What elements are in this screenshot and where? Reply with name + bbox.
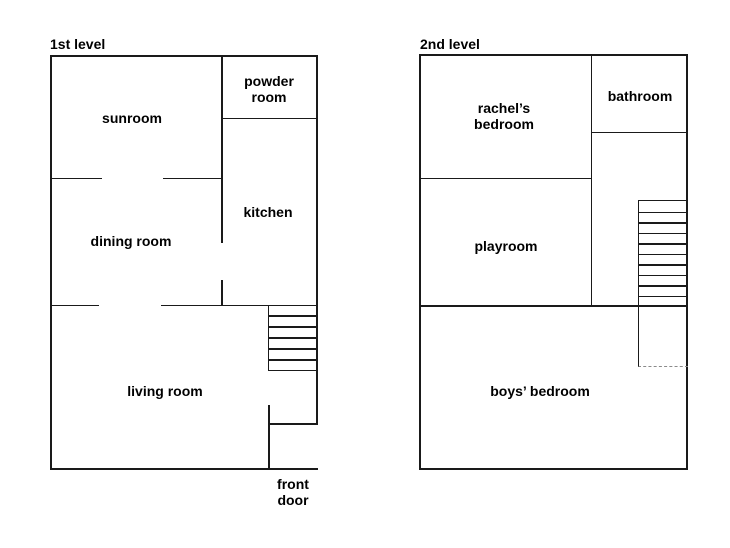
entry-vestibule-north-wall (268, 423, 318, 425)
stair-tread (639, 296, 688, 298)
powder-room-south-wall (221, 118, 318, 120)
kitchen-west-wall-upper (221, 55, 223, 243)
stair-tread (269, 359, 318, 361)
stair-tread (639, 275, 688, 277)
first-level-west-wall (50, 55, 52, 470)
floorplan-canvas: 1st level sunroom powder room kitchen (0, 0, 730, 548)
stair-tread (639, 212, 688, 214)
staircase-second-level (638, 200, 688, 307)
staircase-first-level (268, 305, 318, 372)
stair-tread (639, 264, 688, 266)
second-level-title: 2nd level (420, 37, 480, 51)
stair-tread (639, 222, 688, 224)
room-label-boys-bedroom: boys’ bedroom (490, 383, 590, 399)
stair-tread (269, 326, 318, 328)
room-label-playroom: playroom (474, 238, 537, 254)
entry-vestibule-west-wall (268, 405, 270, 470)
first-level-north-wall (50, 55, 318, 57)
label-front-door: front door (277, 476, 309, 508)
first-level-south-wall (50, 468, 318, 470)
sunroom-dining-wall-right (163, 178, 223, 180)
first-level-title: 1st level (50, 37, 105, 51)
hall-divider-wall (591, 54, 593, 307)
second-level-west-wall (419, 54, 421, 470)
bathroom-south-wall (591, 132, 688, 134)
stair-tread (269, 348, 318, 350)
room-label-living-room: living room (127, 383, 202, 399)
kitchen-west-wall-lower (221, 280, 223, 306)
room-label-sunroom: sunroom (102, 110, 162, 126)
room-label-kitchen: kitchen (243, 204, 292, 220)
second-level-north-wall (419, 54, 688, 56)
stair-tread (269, 315, 318, 317)
sunroom-dining-wall-left (50, 178, 102, 180)
stair-tread (639, 233, 688, 235)
stair-tread (639, 285, 688, 287)
second-level-south-wall (419, 468, 688, 470)
stairwell-opening (638, 307, 688, 368)
stair-tread (269, 337, 318, 339)
room-label-bathroom: bathroom (608, 88, 673, 104)
stair-tread (639, 254, 688, 256)
room-label-rachels-bedroom: rachel’s bedroom (474, 100, 534, 132)
dining-living-wall-left (50, 305, 99, 307)
bedroom-playroom-wall (419, 178, 592, 180)
room-label-dining-room: dining room (91, 233, 172, 249)
stair-tread (639, 243, 688, 245)
room-label-powder-room: powder room (244, 73, 294, 105)
